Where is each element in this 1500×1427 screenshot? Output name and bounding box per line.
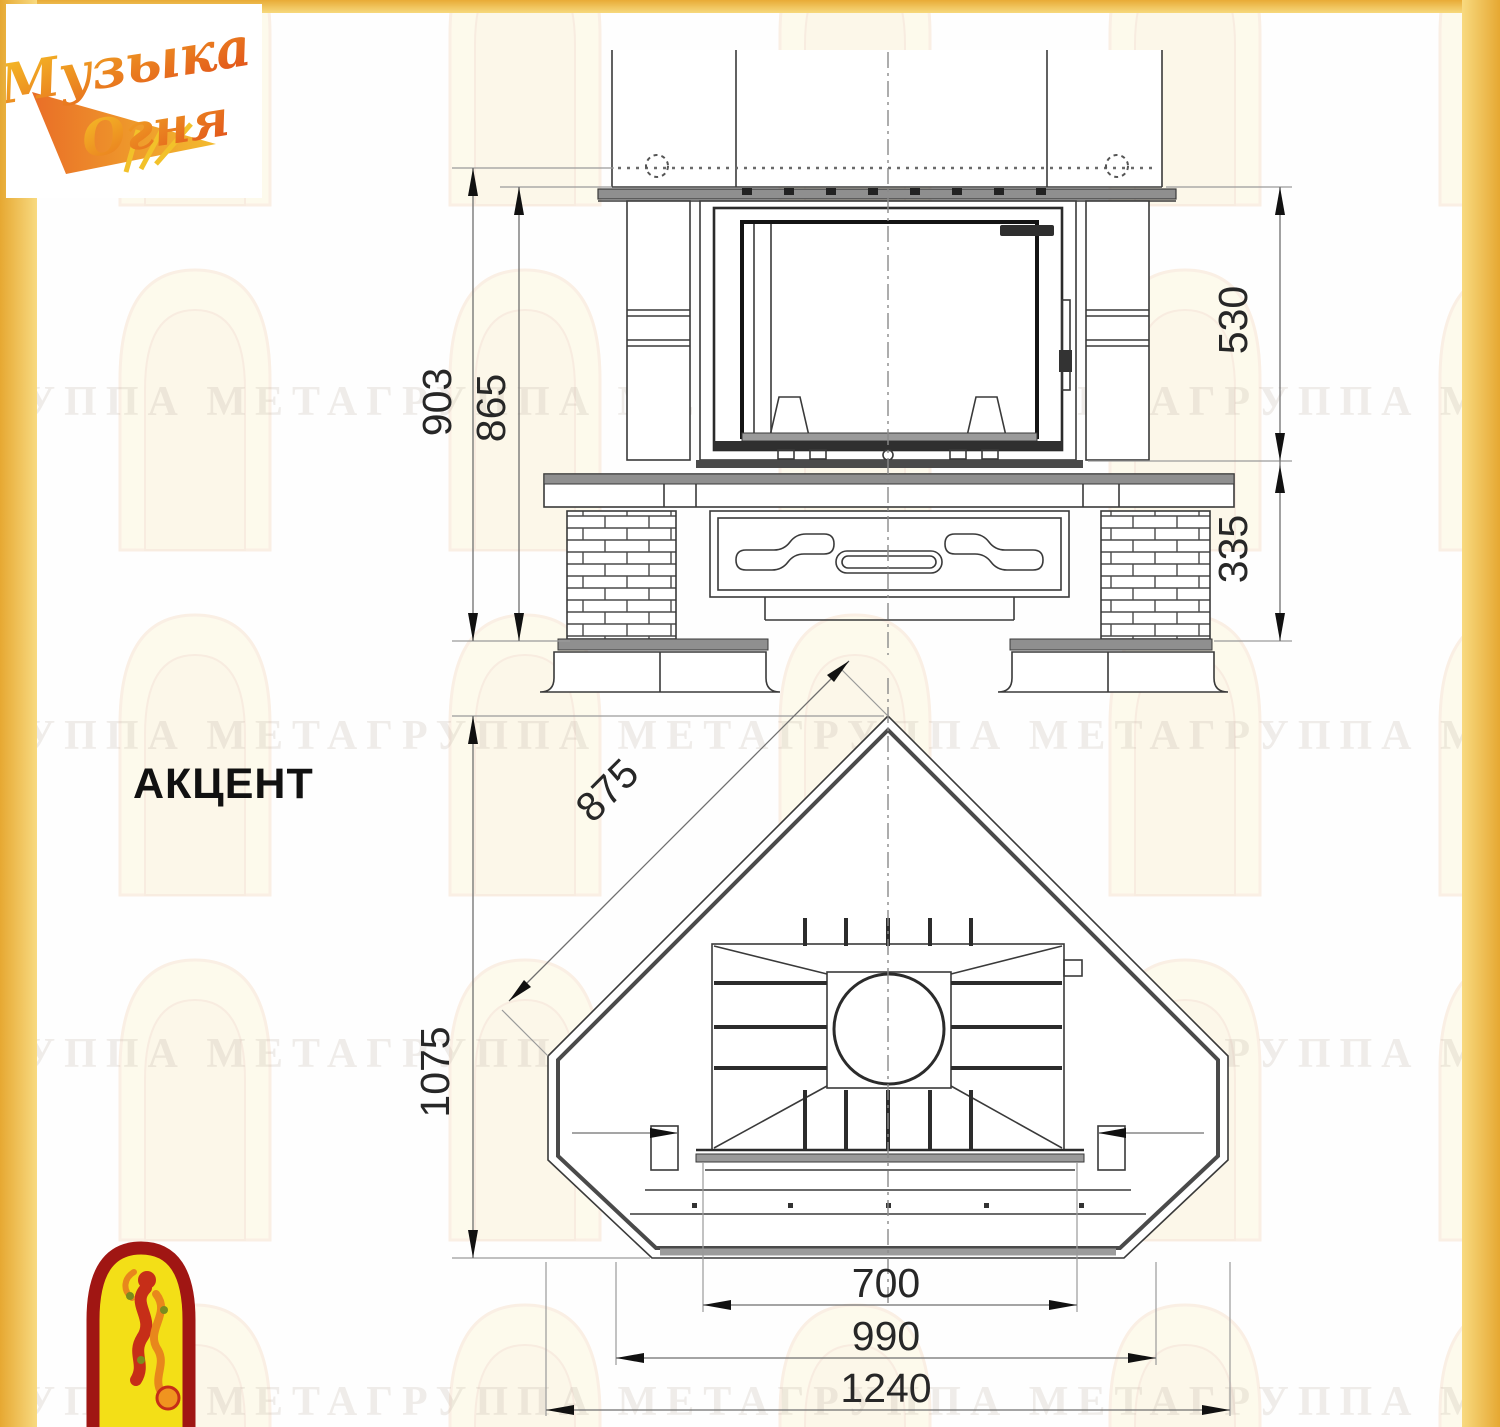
dimension-mid-width: 990 <box>852 1313 920 1359</box>
mantel-shelf <box>598 189 1176 199</box>
brick-pedestal-left <box>567 511 676 639</box>
emblem-sun <box>157 1387 179 1409</box>
dimension-depth: 1075 <box>412 1026 458 1117</box>
left-pillar <box>627 201 690 460</box>
decor-panel <box>710 511 1069 620</box>
dimension-opening-width: 700 <box>852 1260 920 1306</box>
model-title: АКЦЕНТ <box>133 760 314 809</box>
dimension-overall-width: 1240 <box>840 1365 931 1411</box>
page-border-left <box>0 0 37 1427</box>
portal-bottom-band <box>696 460 1083 468</box>
front-elevation-view <box>540 50 1234 692</box>
right-pillar <box>1086 201 1149 460</box>
dimension-firebox-height: 530 <box>1210 286 1256 354</box>
catalog-page: ГРУППА МЕТАГРУППА МЕТАГРУППА МЕТАГРУППА … <box>0 0 1500 1427</box>
stove-brand-plate <box>1000 225 1054 236</box>
dimension-overall-height: 903 <box>414 368 460 436</box>
hearth-slab <box>544 474 1234 507</box>
page-border-right <box>1462 0 1500 1427</box>
flue-circle <box>834 974 944 1084</box>
door-glass <box>742 222 1037 437</box>
base-plinth <box>540 639 1228 692</box>
fire-dancer-emblem <box>84 1238 199 1427</box>
company-logo: Музыка Огня <box>6 4 262 198</box>
fireplace-technical-drawing: 903 865 530 335 <box>0 0 1500 1427</box>
dimension-base-height: 335 <box>1210 515 1256 583</box>
plan-view <box>548 678 1228 1308</box>
dimension-portal-height: 865 <box>468 374 514 442</box>
dimension-side-width: 875 <box>567 750 648 831</box>
door-handle <box>1059 350 1072 372</box>
brick-pedestal-right <box>1101 511 1210 639</box>
